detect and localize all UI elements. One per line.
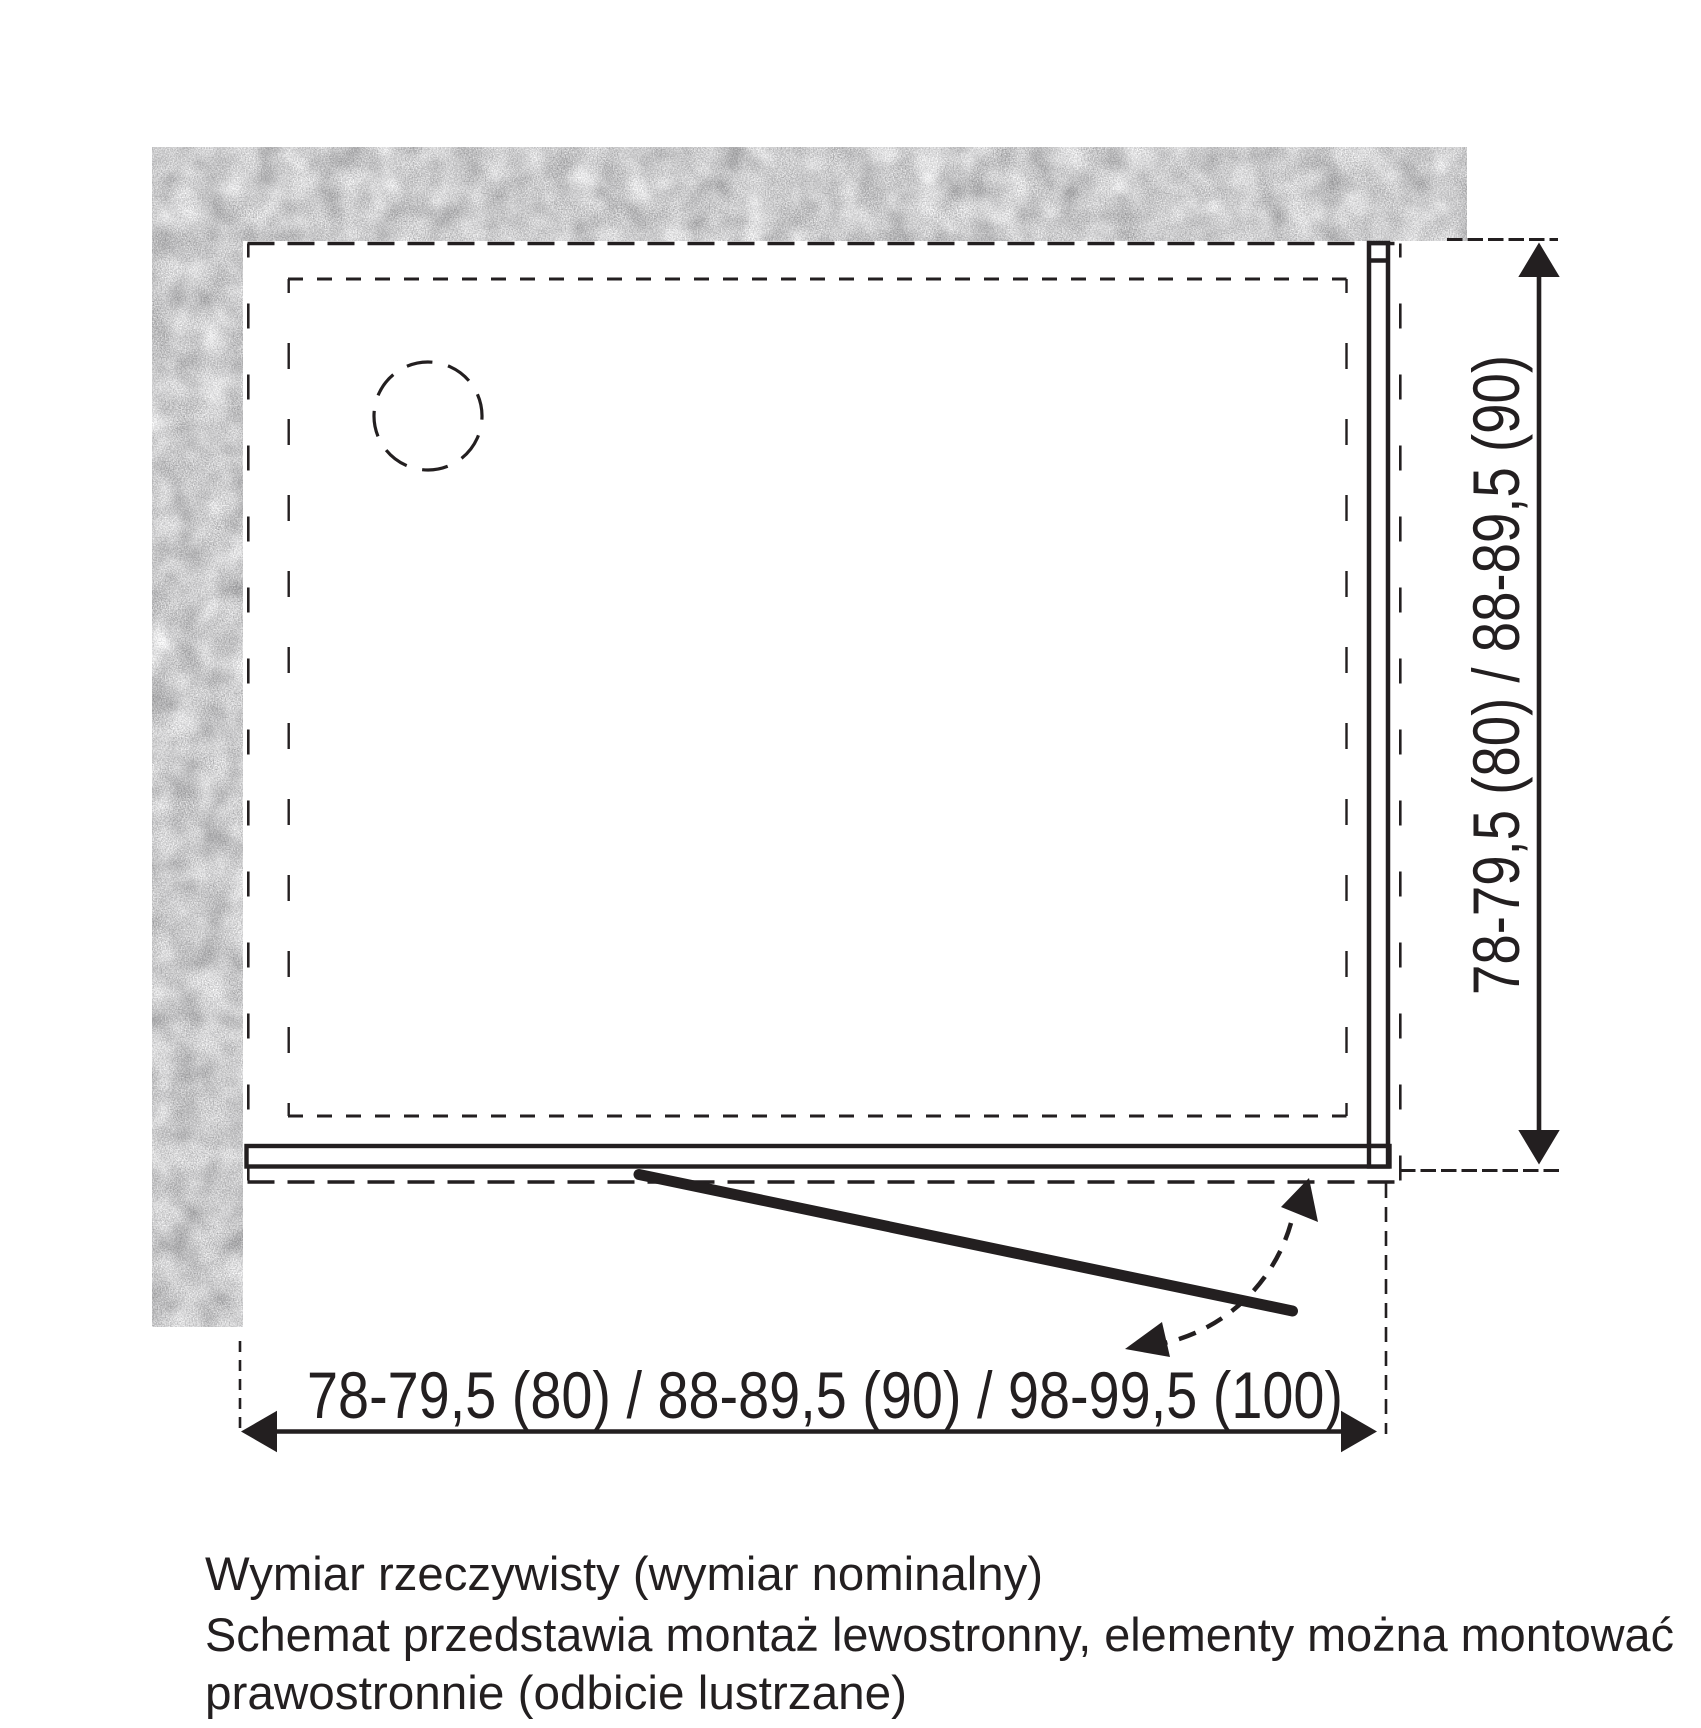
svg-text:Wymiar rzeczywisty (wymiar nom: Wymiar rzeczywisty (wymiar nominalny) xyxy=(205,1547,1043,1600)
svg-text:Schemat przedstawia montaż lew: Schemat przedstawia montaż lewostronny, … xyxy=(205,1608,1674,1661)
svg-text:78-79,5 (80) / 88-89,5 (90) /: 78-79,5 (80) / 88-89,5 (90) / 98-99,5 (1… xyxy=(307,1358,1343,1432)
svg-text:78-79,5 (80) / 88-89,5 (90): 78-79,5 (80) / 88-89,5 (90) xyxy=(1459,355,1533,995)
svg-text:prawostronnie (odbicie lustrza: prawostronnie (odbicie lustrzane) xyxy=(205,1666,907,1719)
